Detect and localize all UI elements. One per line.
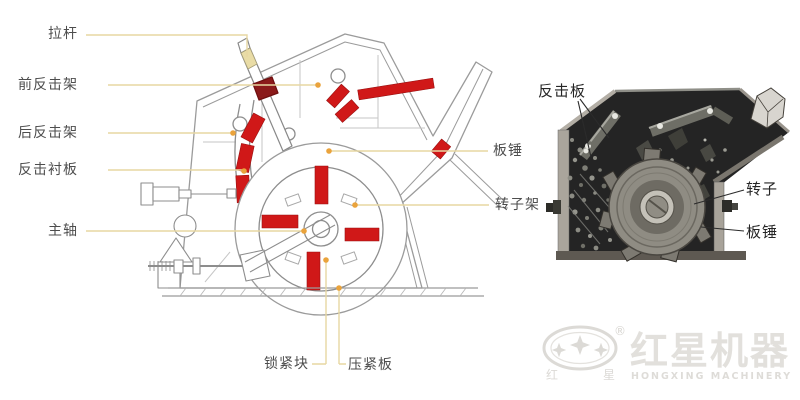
label-lock-block: 锁紧块 <box>264 357 309 372</box>
logo-brand-cn: 红星机器 <box>630 329 790 373</box>
label-tie-rod: 拉杆 <box>18 27 78 42</box>
impact-crusher-diagram-page: ® 红 星 红星机器 HONGXING MACHINERY 拉杆 前反击架 后反… <box>0 0 800 400</box>
machine-drawing <box>141 34 508 315</box>
logo-brand-en: HONGXING MACHINERY <box>631 371 792 382</box>
label-pressing-plate: 压紧板 <box>348 358 393 373</box>
feed-rock <box>751 88 785 128</box>
logo-cn-small-left: 红 <box>546 367 558 382</box>
logo-cn-small-right: 星 <box>603 368 615 382</box>
watermark-logo: ® 红 星 红星机器 HONGXING MACHINERY <box>544 324 792 382</box>
label-rotor-frame: 转子架 <box>495 198 540 213</box>
label-rear-impact-frame: 后反击架 <box>18 126 78 141</box>
diagram-canvas: ® 红 星 红星机器 HONGXING MACHINERY <box>0 0 800 400</box>
main-shaft <box>304 212 338 246</box>
star-icon <box>552 335 608 357</box>
label-photo-rotor: 转子 <box>746 181 778 198</box>
label-blow-bar: 板锤 <box>493 144 523 159</box>
label-photo-blow-bar: 板锤 <box>746 224 778 241</box>
label-impact-liner: 反击衬板 <box>18 163 78 178</box>
label-main-shaft: 主轴 <box>18 224 78 239</box>
label-front-impact-frame: 前反击架 <box>18 78 78 93</box>
label-photo-impact-plate: 反击板 <box>538 83 586 100</box>
registered-mark: ® <box>614 324 626 338</box>
